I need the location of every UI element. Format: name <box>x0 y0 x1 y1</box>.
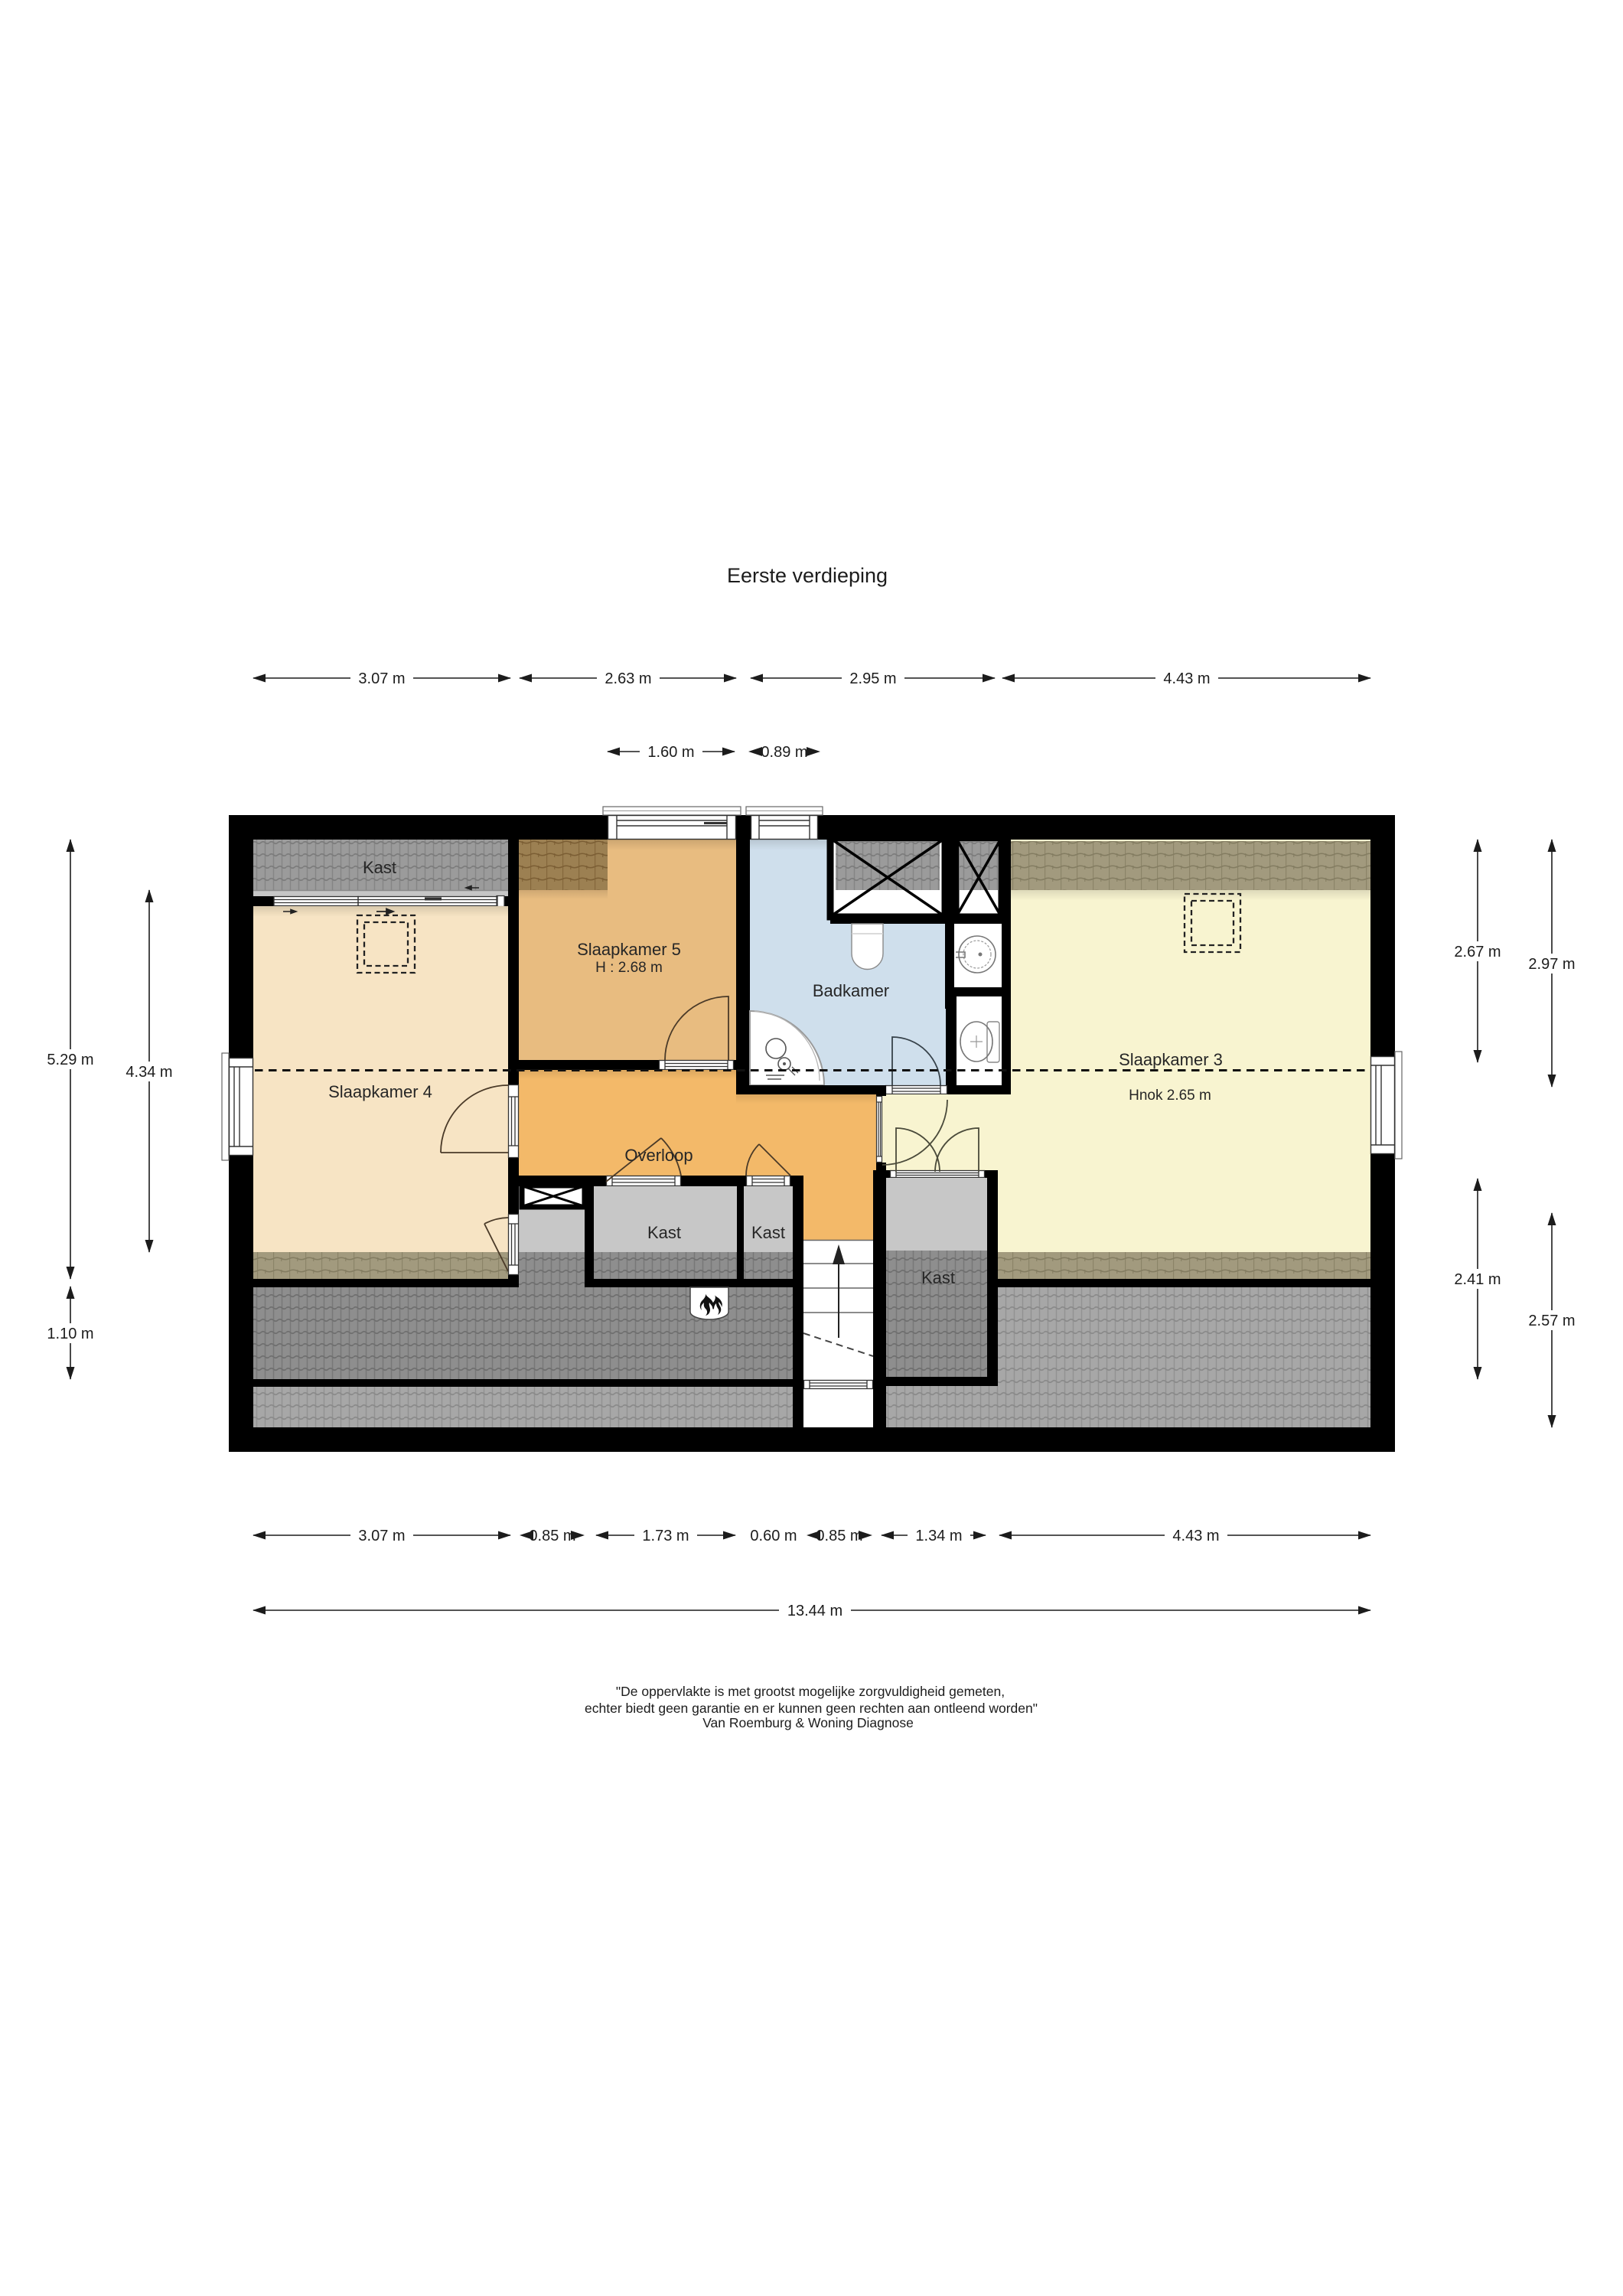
svg-text:4.43 m: 4.43 m <box>1172 1528 1219 1544</box>
svg-text:4.43 m: 4.43 m <box>1163 670 1210 687</box>
svg-text:Kast: Kast <box>921 1268 955 1287</box>
svg-text:Kast: Kast <box>363 858 396 877</box>
svg-text:0.89 m: 0.89 m <box>761 744 807 761</box>
svg-text:3.07 m: 3.07 m <box>358 1528 405 1544</box>
svg-text:0.85 m: 0.85 m <box>529 1528 575 1544</box>
svg-text:Badkamer: Badkamer <box>813 981 889 1000</box>
svg-text:Slaapkamer 4: Slaapkamer 4 <box>328 1082 432 1101</box>
svg-text:5.29 m: 5.29 m <box>47 1052 93 1068</box>
svg-text:1.60 m: 1.60 m <box>647 744 694 761</box>
svg-text:Eerste verdieping: Eerste verdieping <box>727 564 888 587</box>
svg-text:0.85 m: 0.85 m <box>816 1528 862 1544</box>
svg-text:H : 2.68 m: H : 2.68 m <box>595 960 663 976</box>
svg-text:2.57 m: 2.57 m <box>1528 1313 1575 1329</box>
svg-text:Van Roemburg & Woning Diagnose: Van Roemburg & Woning Diagnose <box>702 1715 914 1730</box>
svg-text:1.73 m: 1.73 m <box>642 1528 689 1544</box>
svg-text:1.34 m: 1.34 m <box>915 1528 962 1544</box>
svg-text:Overloop: Overloop <box>624 1146 693 1165</box>
svg-text:13.44 m: 13.44 m <box>787 1603 842 1619</box>
svg-text:Kast: Kast <box>751 1223 785 1242</box>
svg-text:echter biedt geen garantie en: echter biedt geen garantie en er kunnen … <box>585 1701 1038 1716</box>
svg-text:Slaapkamer 3: Slaapkamer 3 <box>1119 1050 1223 1069</box>
svg-text:2.95 m: 2.95 m <box>849 670 896 687</box>
svg-text:1.10 m: 1.10 m <box>47 1326 93 1342</box>
svg-text:2.41 m: 2.41 m <box>1454 1271 1501 1288</box>
svg-text:2.67 m: 2.67 m <box>1454 944 1501 960</box>
svg-text:Slaapkamer 5: Slaapkamer 5 <box>577 940 681 959</box>
svg-text:Hnok 2.65 m: Hnok 2.65 m <box>1129 1088 1211 1104</box>
svg-text:2.63 m: 2.63 m <box>605 670 651 687</box>
svg-text:0.60 m: 0.60 m <box>750 1528 797 1544</box>
svg-text:3.07 m: 3.07 m <box>358 670 405 687</box>
svg-text:2.97 m: 2.97 m <box>1528 956 1575 973</box>
svg-text:4.34 m: 4.34 m <box>125 1064 172 1081</box>
svg-text:"De oppervlakte is met grootst: "De oppervlakte is met grootst mogelijke… <box>616 1684 1005 1699</box>
svg-text:Kast: Kast <box>647 1223 681 1242</box>
